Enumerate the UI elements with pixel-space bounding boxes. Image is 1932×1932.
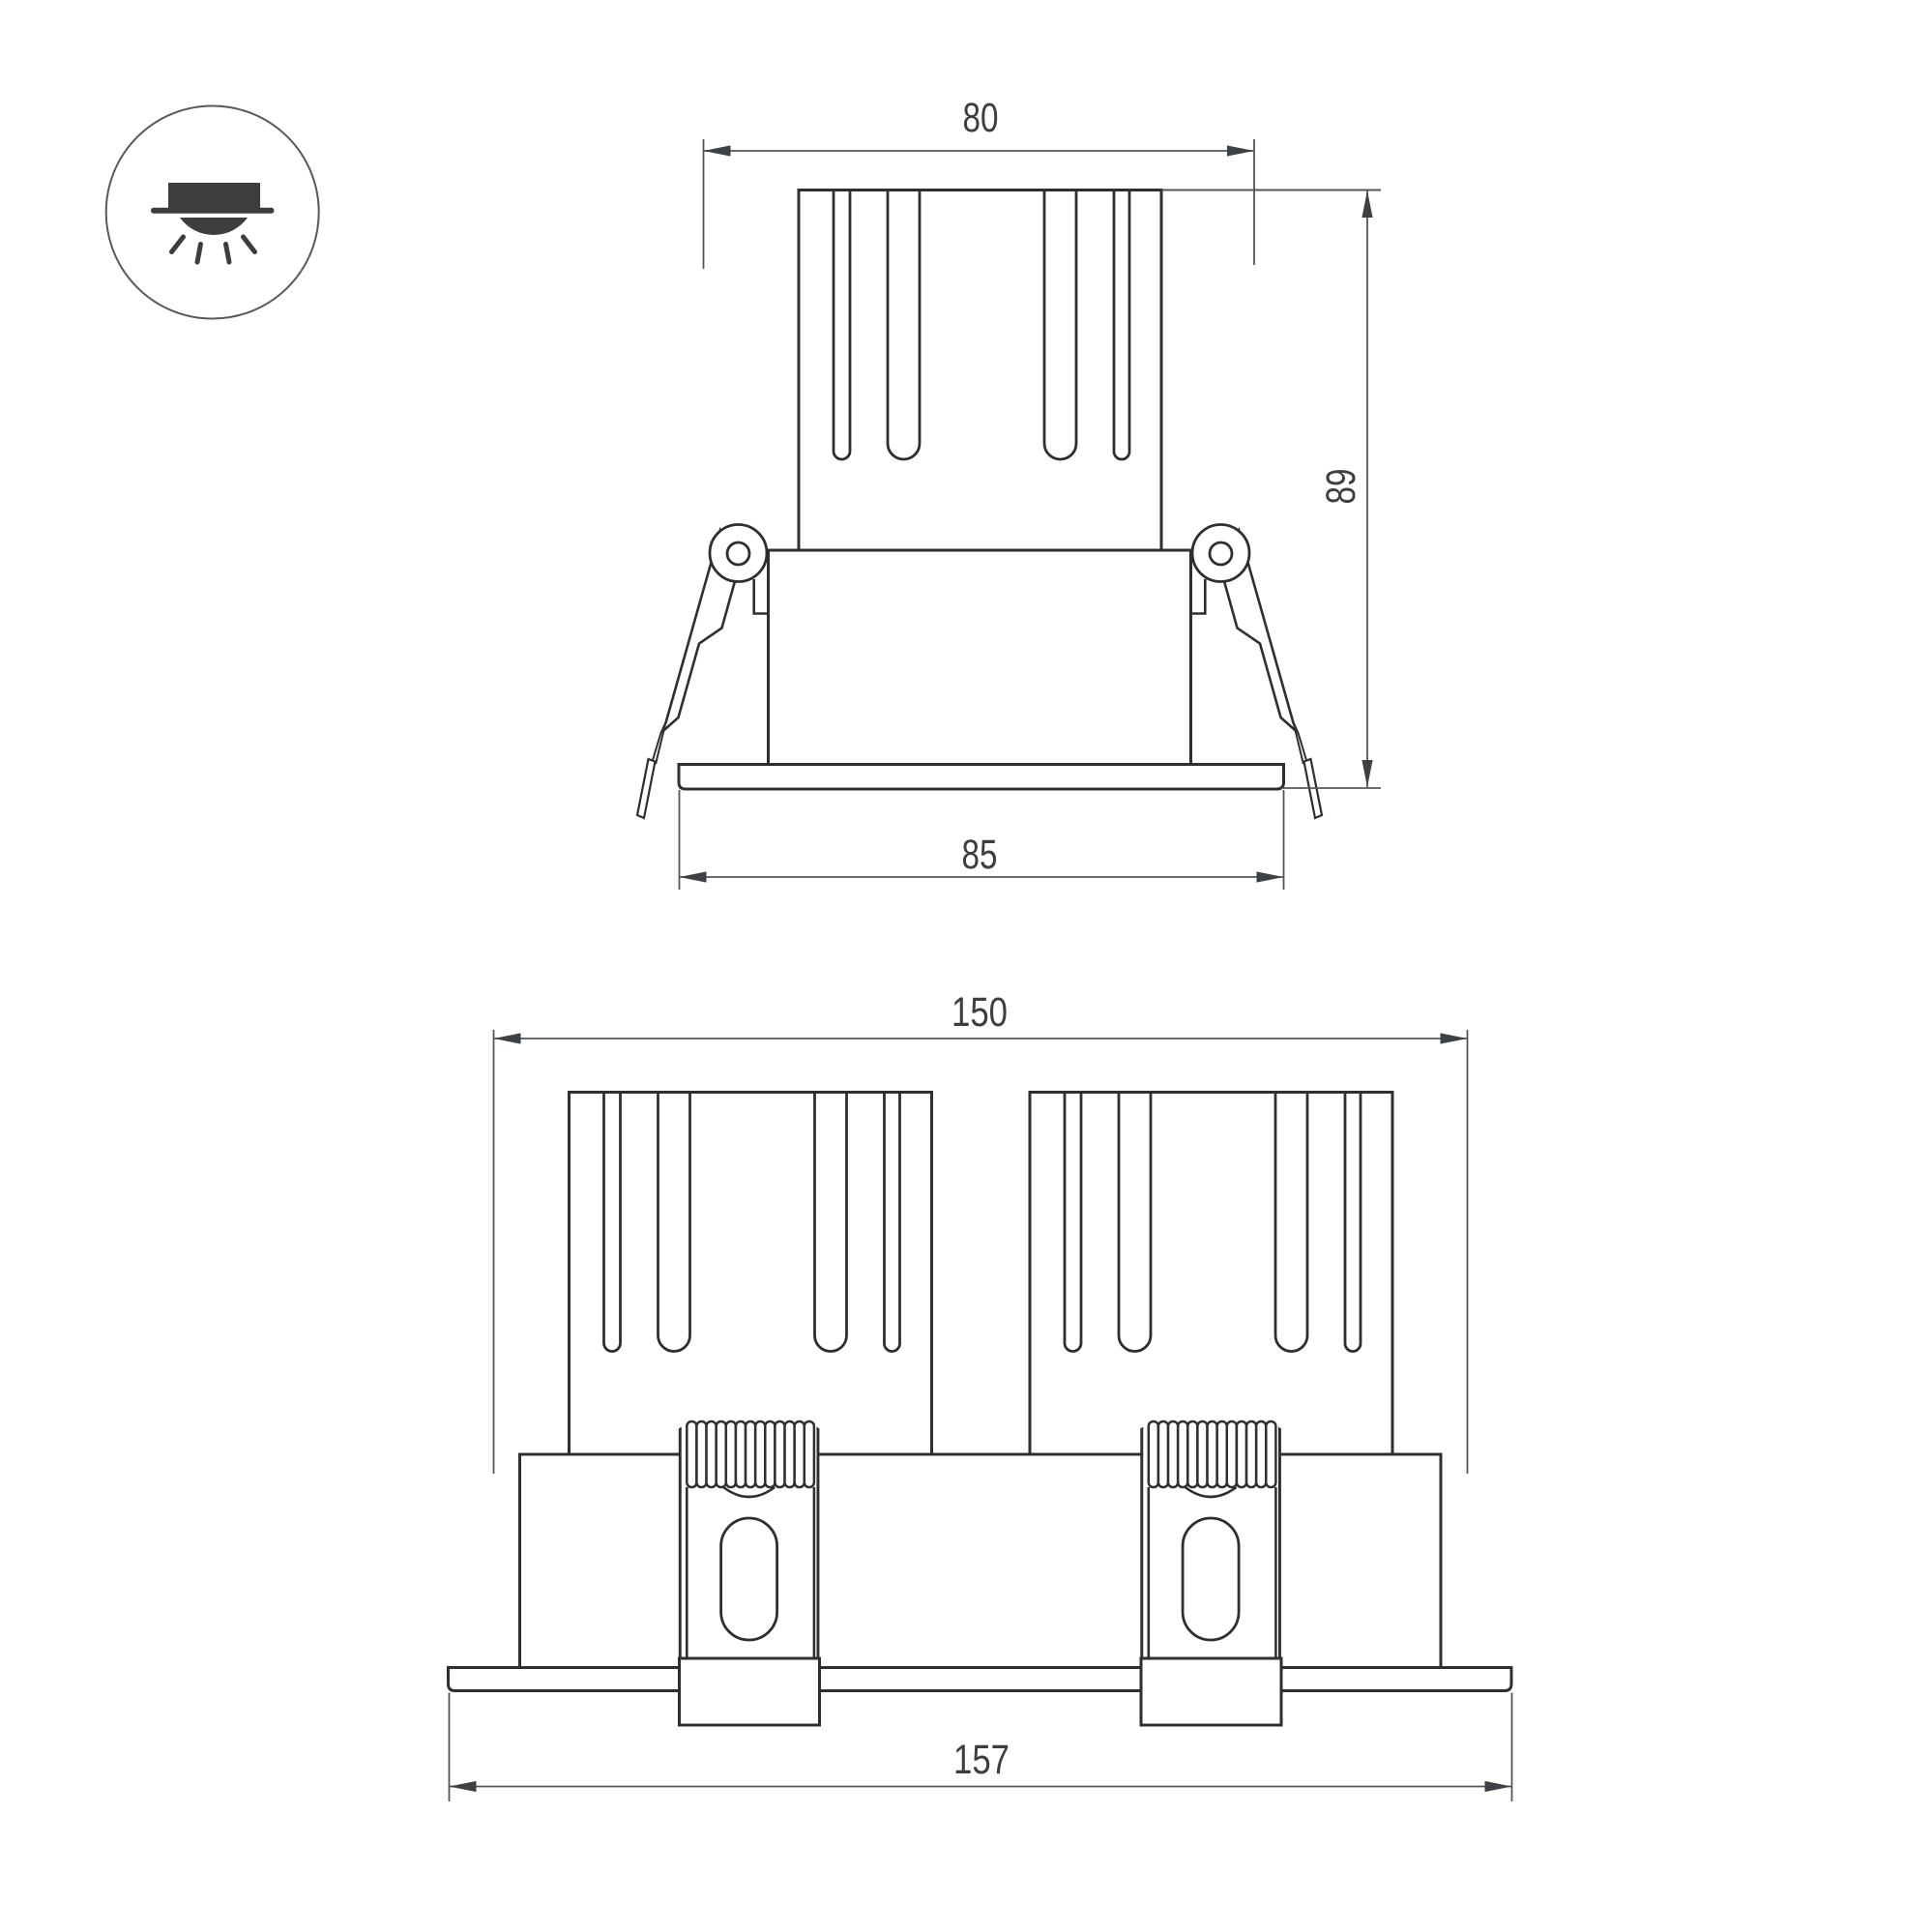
svg-text:150: 150 xyxy=(951,989,1008,1036)
svg-text:85: 85 xyxy=(962,832,998,878)
svg-text:80: 80 xyxy=(963,95,999,141)
svg-text:157: 157 xyxy=(953,1737,1010,1783)
svg-text:89: 89 xyxy=(1318,469,1364,505)
